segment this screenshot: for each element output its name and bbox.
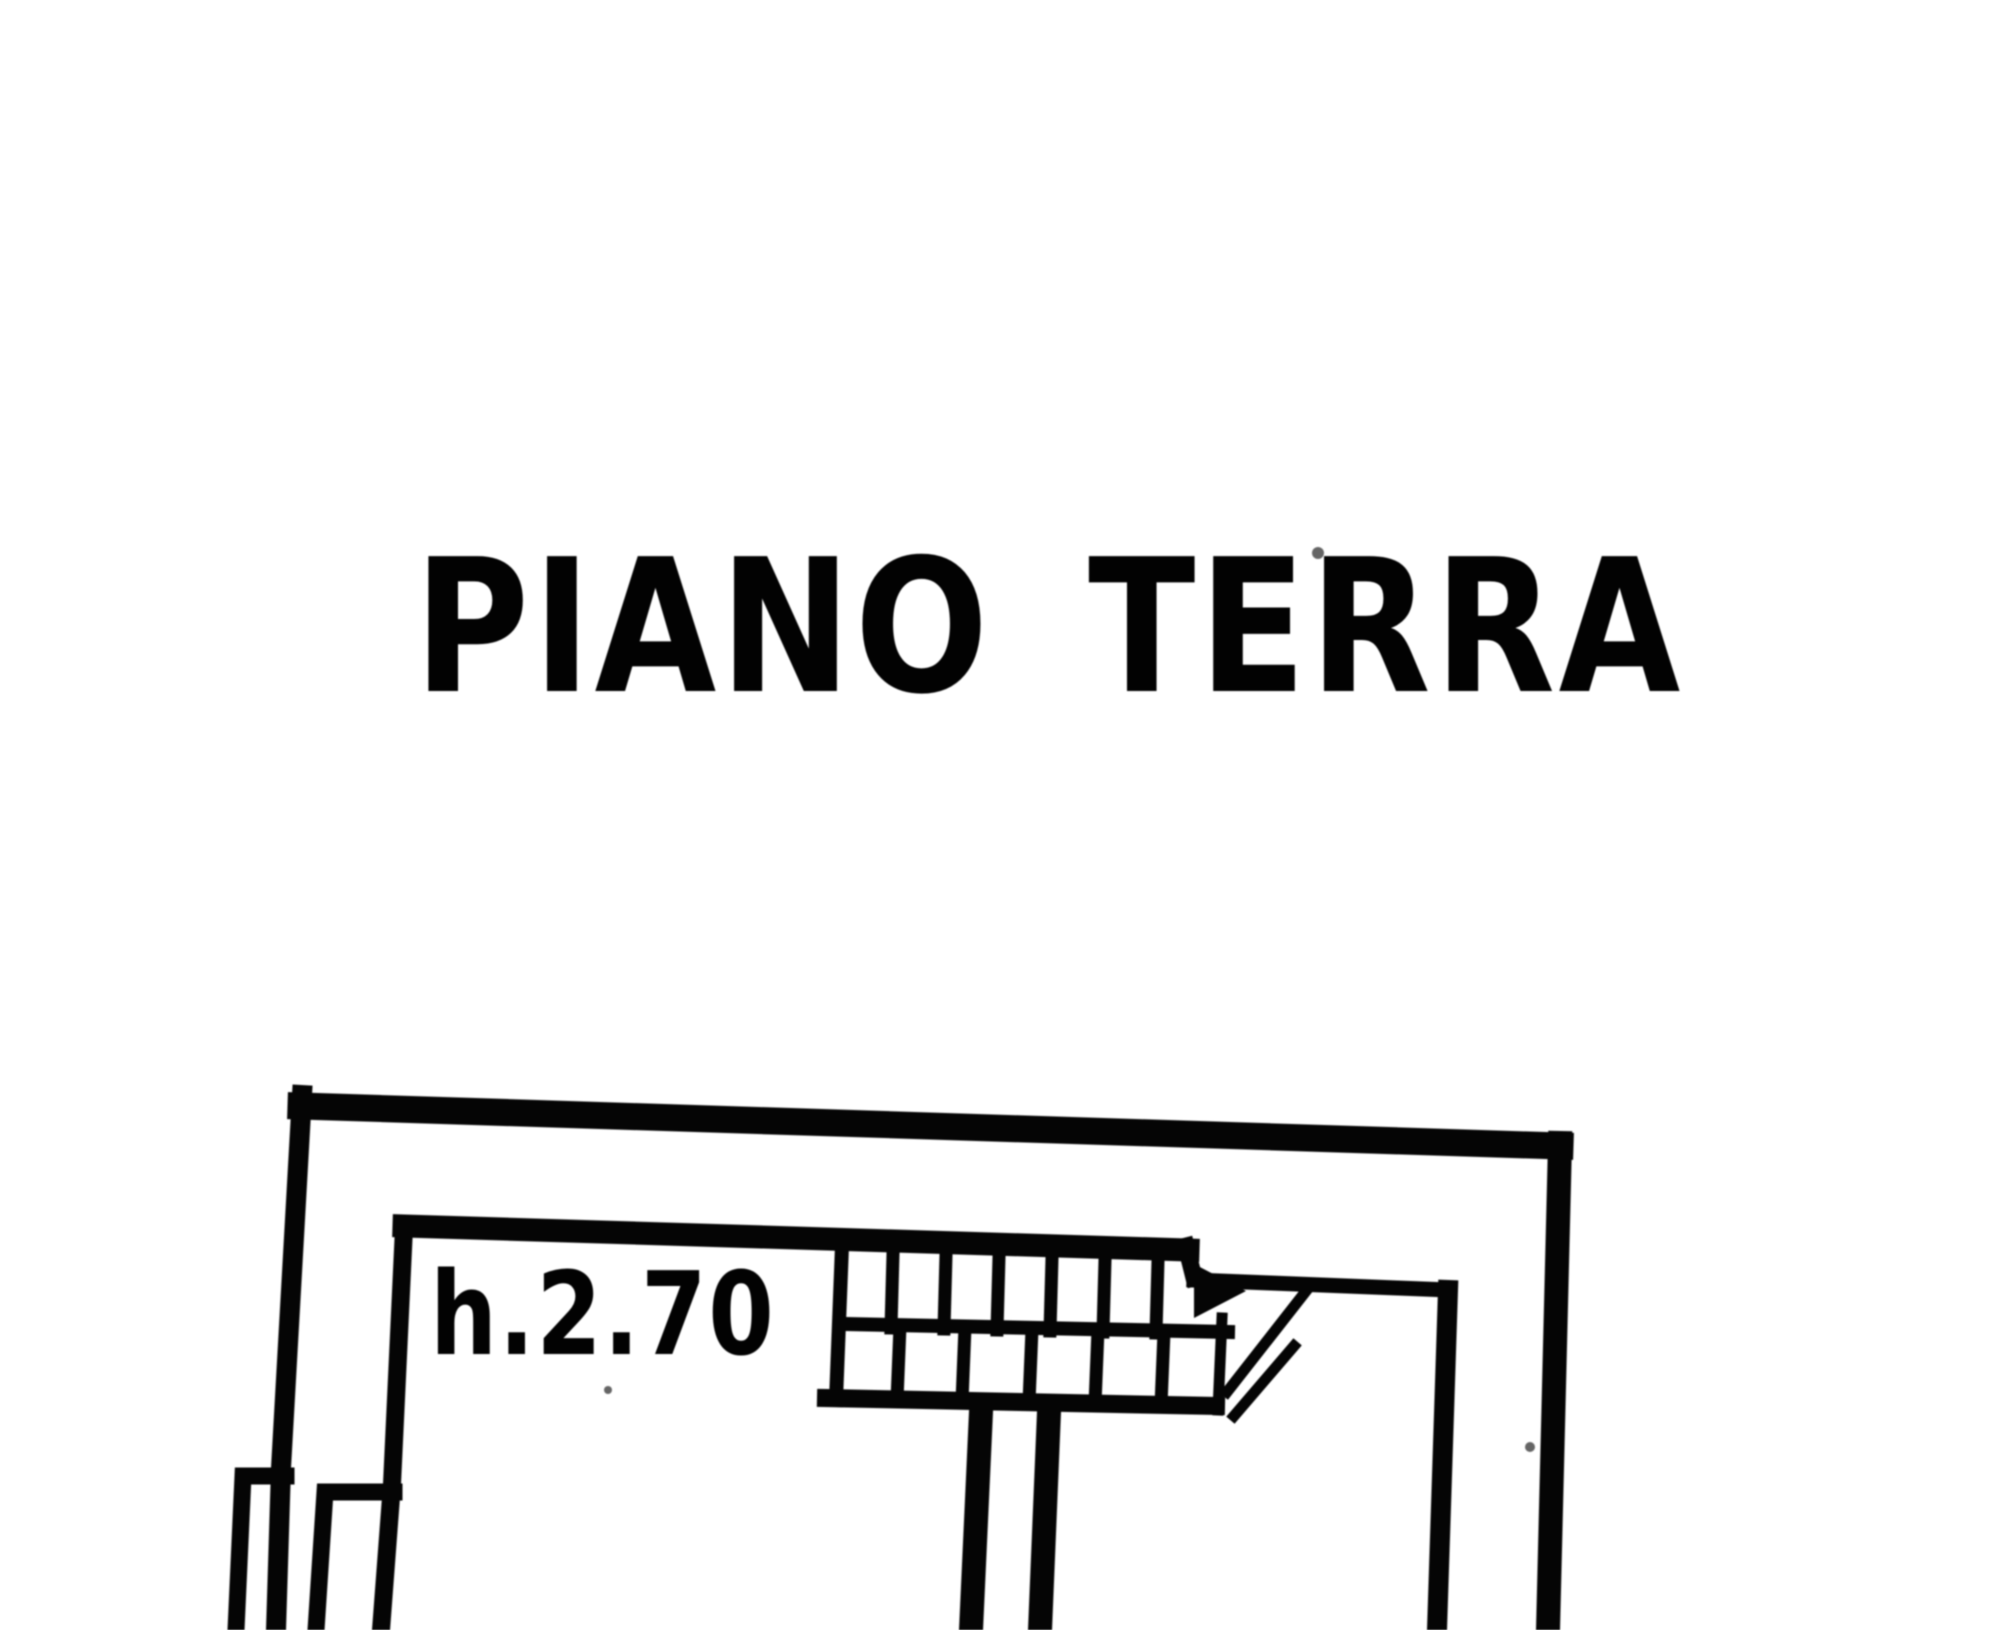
scan-speckles [604, 547, 1535, 1452]
scan-layer: PIANO TERRA h.2.70 [0, 0, 2000, 1630]
floorplan-drawing [0, 0, 2000, 1630]
inner-wall-line [316, 1226, 1448, 1630]
stair-section-cut-line [1218, 1286, 1310, 1416]
stairwell-walls-descending [971, 1412, 1049, 1630]
stair-direction-arrow [1194, 1264, 1246, 1318]
staircase-with-steps [826, 1246, 1310, 1416]
scanned-floorplan-page: PIANO TERRA h.2.70 [0, 0, 2000, 1630]
